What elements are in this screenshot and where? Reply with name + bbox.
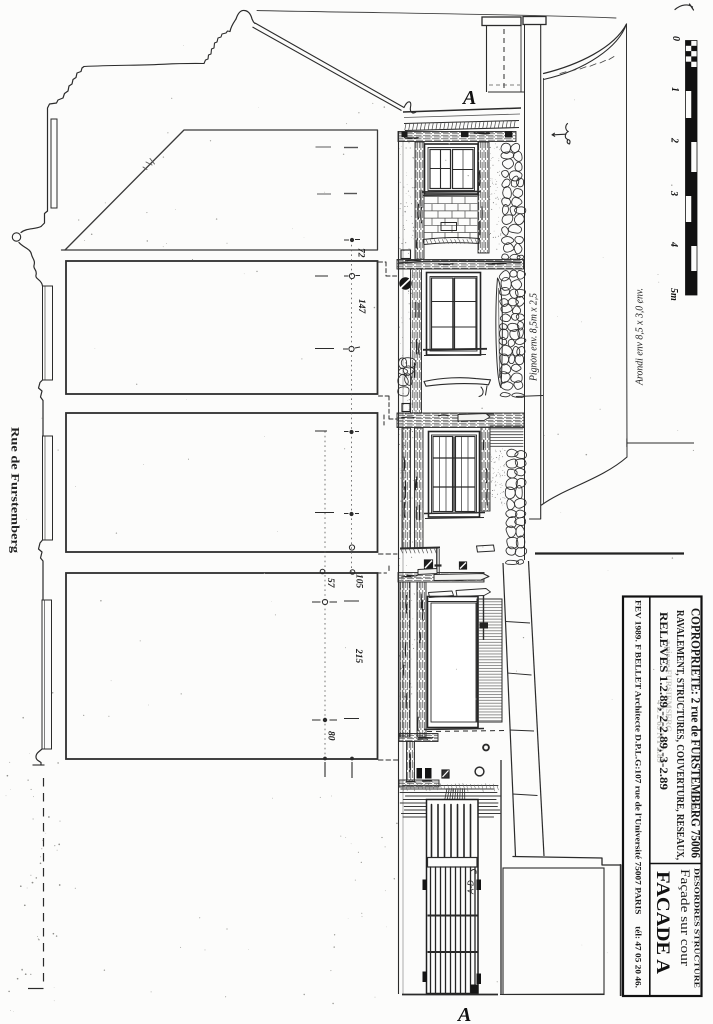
- svg-text:Rue de Furstemberg: Rue de Furstemberg: [9, 427, 23, 553]
- svg-text:5m: 5m: [668, 288, 679, 301]
- svg-text:4: 4: [668, 241, 679, 247]
- svg-text:FACADE A: FACADE A: [652, 871, 673, 974]
- svg-text:105: 105: [354, 574, 364, 589]
- svg-text:147: 147: [356, 299, 366, 315]
- svg-text:3: 3: [668, 190, 679, 196]
- svg-text:A: A: [456, 1004, 471, 1024]
- svg-text:57: 57: [325, 578, 335, 589]
- svg-text:Façade sur cour: Façade sur cour: [678, 869, 693, 967]
- svg-text:A: A: [461, 87, 476, 109]
- svg-text:2: 2: [669, 137, 680, 143]
- svg-text:RELEVES 1.2.89,-2-2.89,-3-2.89: RELEVES 1.2.89,-2-2.89,-3-2.89: [657, 612, 669, 790]
- svg-text:1: 1: [669, 87, 680, 92]
- svg-text:FEV 1989. F BELLET Architecte: FEV 1989. F BELLET Architecte D.P.L.G:10…: [634, 600, 644, 988]
- svg-text:Pignon env. 8,5m x 2,5: Pignon env. 8,5m x 2,5: [529, 293, 540, 382]
- svg-text:COPROPRIETE: 2 rue de FURSTEMB: COPROPRIETE: 2 rue de FURSTEMBERG 75006: [689, 608, 703, 858]
- svg-text:215: 215: [353, 648, 363, 664]
- svg-text:Arondi env 8,5 x 3,0 env.: Arondi env 8,5 x 3,0 env.: [635, 288, 646, 386]
- svg-text:A-D: A-D: [467, 880, 476, 895]
- svg-text:0: 0: [670, 36, 681, 41]
- svg-text:RAVALEMENT, STRUCTURES, COUV: RAVALEMENT, STRUCTURES, COUVERTURE, RESE…: [674, 610, 685, 860]
- svg-text:80: 80: [326, 731, 336, 741]
- svg-text:72: 72: [356, 248, 366, 258]
